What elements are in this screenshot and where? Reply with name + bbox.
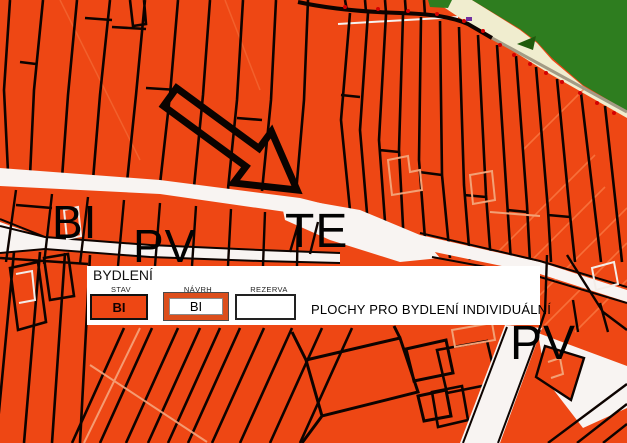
legend-swatch-stav-label: BI	[113, 300, 126, 315]
zoning-map-canvas: BI PV TE PV	[0, 0, 627, 443]
legend-swatch-navrh-label: BI	[190, 299, 202, 314]
zoning-map-viewport[interactable]: BI PV TE PV BYDLENÍ STAV NÁVRH REZERVA B…	[0, 0, 627, 443]
legend-column-rezerva: REZERVA	[250, 285, 288, 294]
purple-boundary-tick	[466, 17, 472, 21]
map-label-bi: BI	[52, 196, 97, 248]
legend-title: BYDLENÍ	[93, 267, 153, 283]
legend-swatch-stav: BI	[90, 294, 148, 320]
legend-swatch-rezerva	[235, 294, 296, 320]
legend-column-stav: STAV	[111, 285, 131, 294]
legend-swatch-navrh: BI	[163, 292, 229, 321]
map-label-te: TE	[285, 205, 348, 258]
legend-panel: BYDLENÍ STAV NÁVRH REZERVA BI BI PLOCHY …	[87, 266, 540, 325]
map-label-pv-left: PV	[133, 220, 196, 272]
legend-description: PLOCHY PRO BYDLENÍ INDIVIDUÁLNÍ	[311, 302, 551, 317]
